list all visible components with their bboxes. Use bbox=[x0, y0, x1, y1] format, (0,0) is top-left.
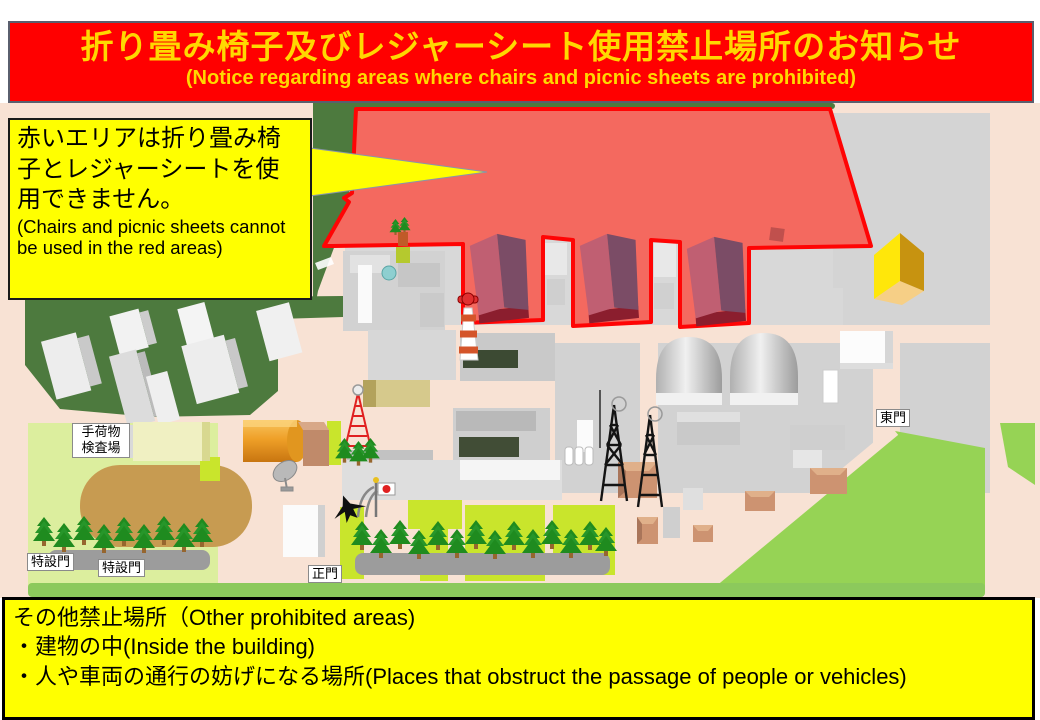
special-gate-label-2: 特設門 bbox=[98, 559, 145, 577]
east-gate-label: 東門 bbox=[876, 409, 910, 427]
prohibited-building-3 bbox=[686, 235, 748, 327]
prohibited-building-1 bbox=[469, 232, 531, 324]
footer-line-2: ・建物の中(Inside the building) bbox=[13, 632, 1024, 661]
main-gate-building bbox=[283, 505, 325, 557]
hangar-2 bbox=[730, 333, 798, 405]
hangar-1 bbox=[656, 337, 722, 405]
quonset-hut bbox=[243, 420, 307, 462]
notice-slide: 折り畳み椅子及びレジャーシート使用禁止場所のお知らせ (Notice regar… bbox=[0, 0, 1040, 720]
baggage-check-label: 手荷物検査場 bbox=[72, 423, 130, 458]
red-square-marker bbox=[769, 227, 785, 242]
prohibited-building-2 bbox=[579, 232, 641, 324]
red-hydrant-icon bbox=[462, 293, 474, 305]
header-banner: 折り畳み椅子及びレジャーシート使用禁止場所のお知らせ (Notice regar… bbox=[8, 21, 1034, 103]
main-gate-label: 正門 bbox=[308, 565, 342, 583]
special-gate-label-1: 特設門 bbox=[27, 553, 74, 571]
callout-text-jp: 赤いエリアは折り畳み椅子とレジャーシートを使用できません。 bbox=[17, 124, 303, 216]
page-subtitle: (Notice regarding areas where chairs and… bbox=[10, 67, 1032, 89]
callout-text-en: (Chairs and picnic sheets cannot be used… bbox=[17, 216, 303, 259]
cream-building-side bbox=[202, 422, 210, 461]
other-prohibited-areas-box: その他禁止場所（Other prohibited areas) ・建物の中(In… bbox=[2, 597, 1035, 720]
footer-line-3: ・人や車両の通行の妨げになる場所(Places that obstruct th… bbox=[13, 662, 1024, 691]
west-central-complex bbox=[343, 251, 445, 331]
teal-sphere-tank bbox=[382, 266, 396, 280]
page-title: 折り畳み椅子及びレジャーシート使用禁止場所のお知らせ bbox=[10, 26, 1032, 67]
south-green-strip bbox=[28, 583, 985, 597]
prohibition-callout: 赤いエリアは折り畳み椅子とレジャーシートを使用できません。 (Chairs an… bbox=[8, 118, 312, 300]
footer-line-1: その他禁止場所（Other prohibited areas) bbox=[13, 603, 1024, 632]
facility-map: 手荷物検査場 特設門 特設門 正門 東門 赤いエリアは折り畳み椅子とレジャーシー… bbox=[0, 103, 1040, 598]
yellow-green-plot bbox=[396, 247, 410, 263]
cream-building bbox=[133, 422, 210, 461]
